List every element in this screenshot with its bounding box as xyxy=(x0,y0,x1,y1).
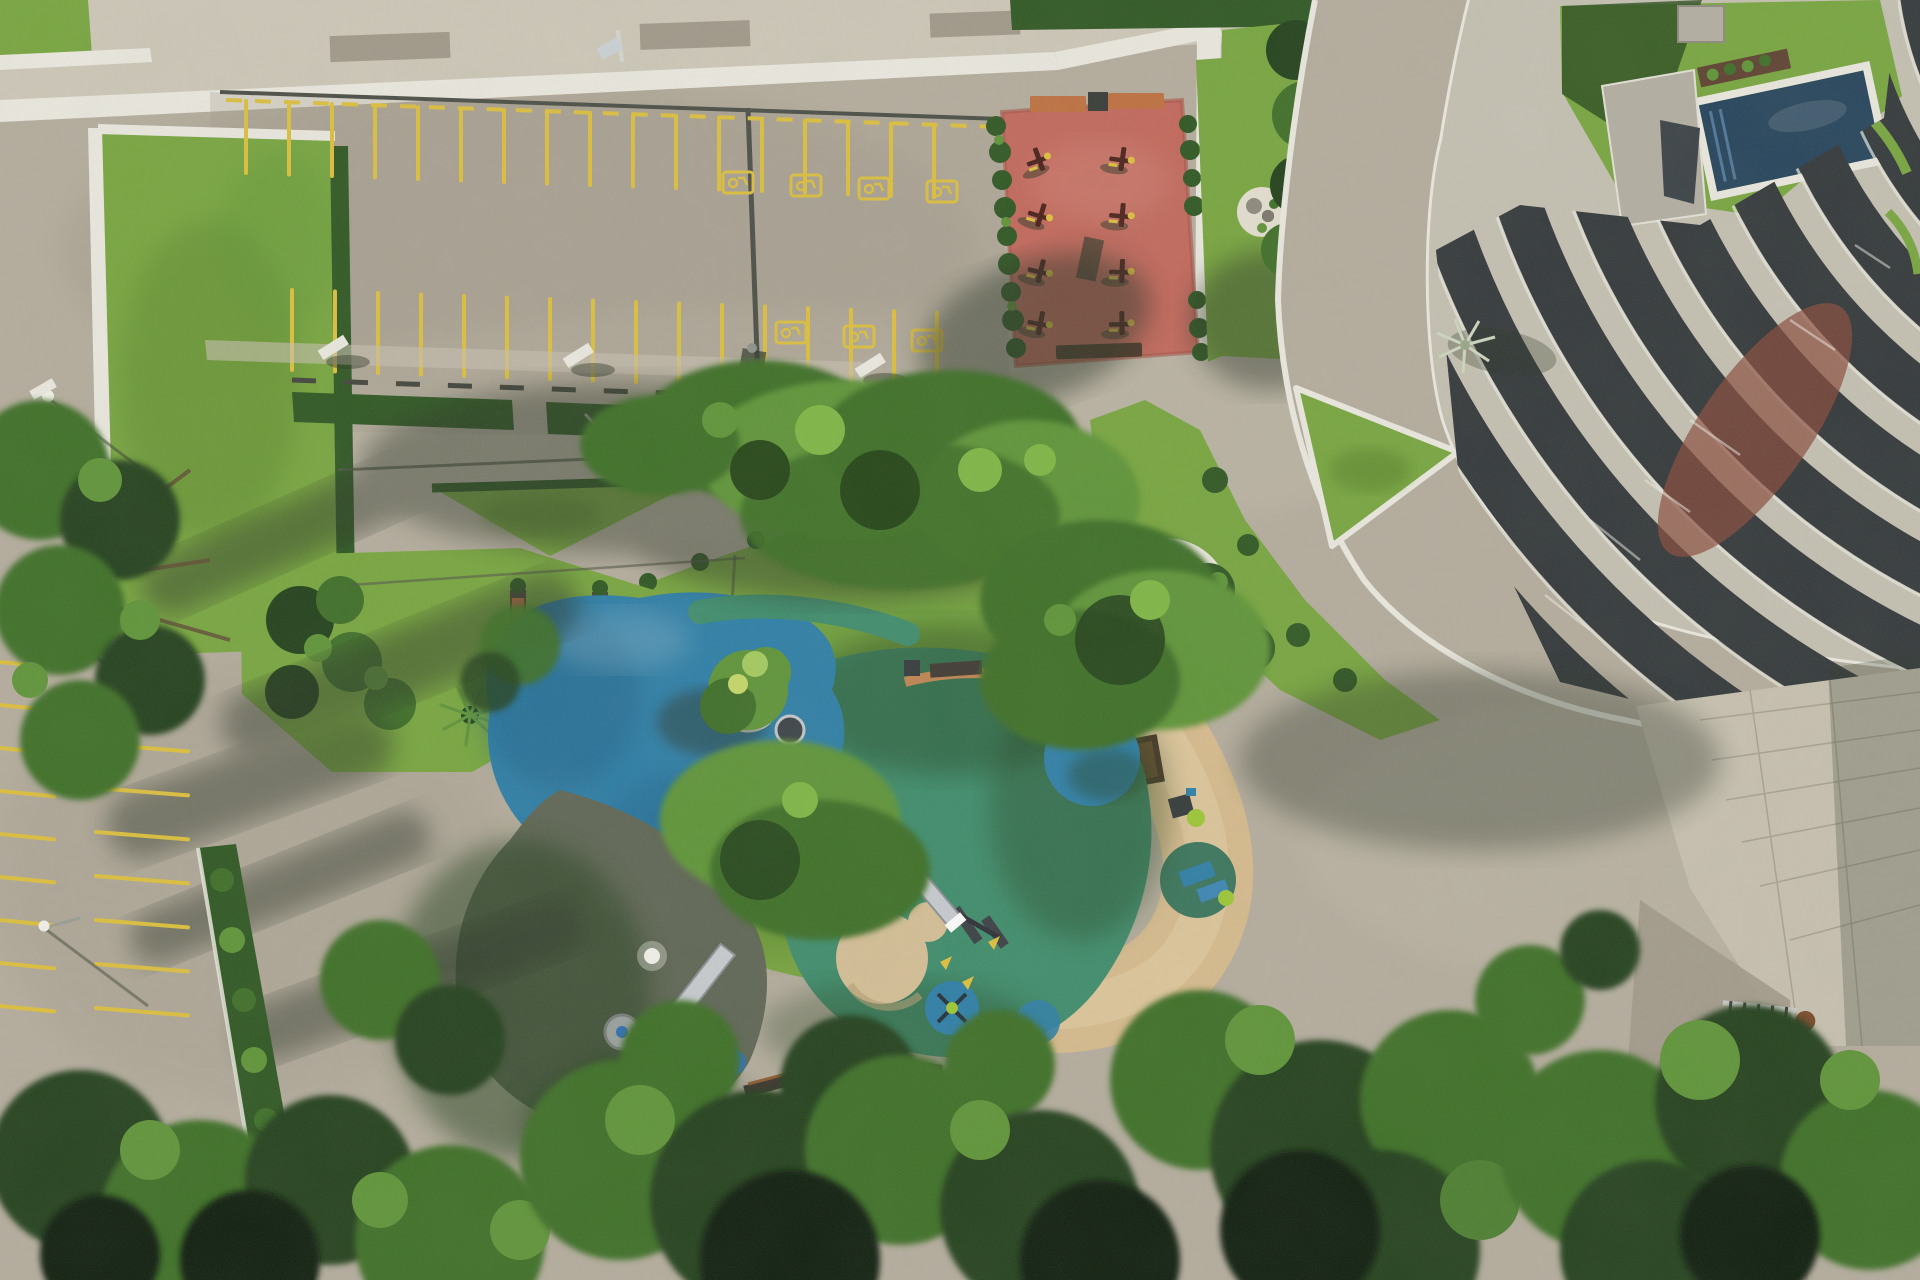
grain-overlay xyxy=(0,0,1920,1280)
aerial-photo-stage: Aerial top-down drone photo of a modern … xyxy=(0,0,1920,1280)
aerial-photo: Aerial top-down drone photo of a modern … xyxy=(0,0,1920,1280)
